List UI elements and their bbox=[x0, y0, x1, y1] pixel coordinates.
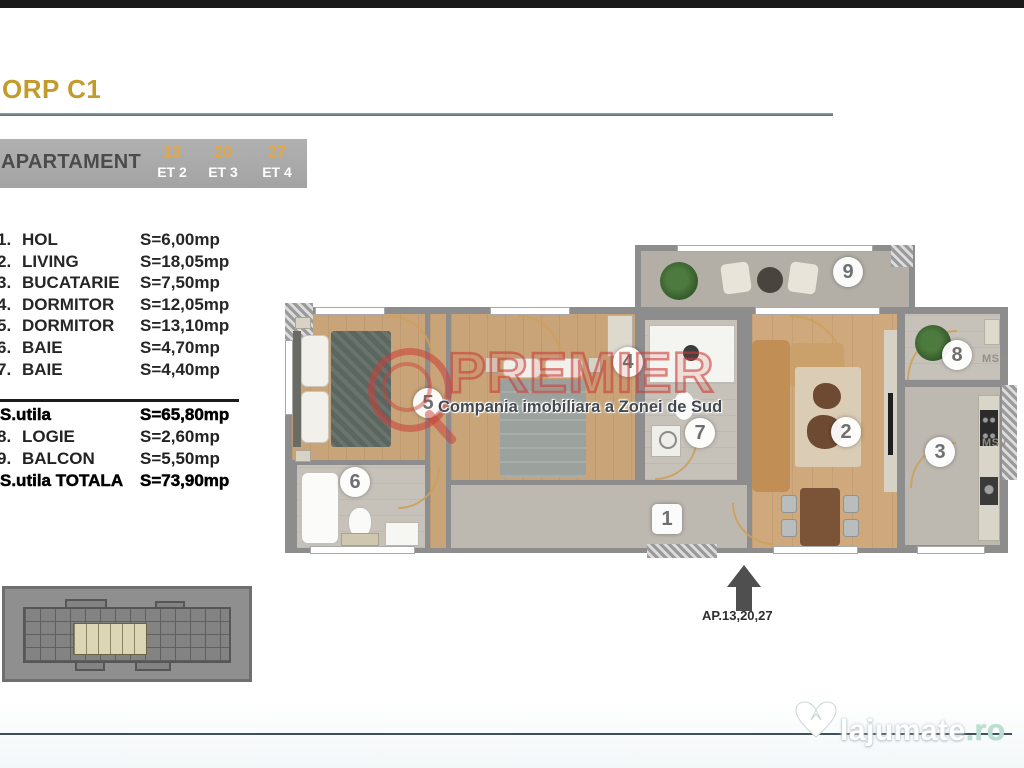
room-index: 2. bbox=[0, 252, 11, 272]
room-badge-hol: 1 bbox=[652, 504, 682, 534]
washing-machine bbox=[651, 425, 681, 457]
room-badge-baie-7: 7 bbox=[685, 418, 715, 448]
bed-blanket bbox=[331, 331, 391, 447]
totals-divider bbox=[0, 399, 239, 402]
room-row: 7. BAIE S=4,40mp bbox=[0, 360, 260, 382]
room-index: 7. bbox=[0, 360, 11, 380]
mini-building-wing bbox=[75, 661, 105, 671]
total-label: LOGIE bbox=[22, 427, 75, 447]
apartment-floorplan: 1 2 3 4 5 6 7 8 9 MSR MSV bbox=[285, 245, 1017, 561]
sofa bbox=[752, 340, 790, 492]
room-badge-dormitor-5: 5 bbox=[413, 388, 443, 418]
room-badge-living: 2 bbox=[831, 417, 861, 447]
dining-chair bbox=[843, 495, 859, 513]
coffee-table bbox=[813, 383, 841, 409]
room-index: 3. bbox=[0, 273, 11, 293]
total-row: 8. LOGIE S=2,60mp bbox=[0, 427, 260, 449]
room-badge-balcon: 9 bbox=[833, 257, 863, 287]
msv-label: MSV bbox=[982, 437, 1007, 449]
window bbox=[315, 307, 385, 315]
room-name: LIVING bbox=[22, 252, 79, 272]
total-area: S=73,90mp bbox=[140, 471, 229, 491]
room-badge-logie: 8 bbox=[942, 340, 972, 370]
hatch-area bbox=[891, 245, 913, 267]
entrance-arrow-label: AP.13,20,27 bbox=[702, 608, 812, 623]
apartment-table: APARTAMENT 13 ET 2 20 ET 3 27 ET 4 bbox=[0, 139, 307, 188]
balcony-chair bbox=[719, 260, 753, 296]
bed-headboard bbox=[293, 331, 301, 447]
toilet bbox=[673, 391, 695, 421]
bed-pillow bbox=[545, 358, 583, 378]
room-name: BUCATARIE bbox=[22, 273, 120, 293]
total-area: S=2,60mp bbox=[140, 427, 220, 447]
total-row: S.utila TOTALA S=73,90mp bbox=[0, 471, 260, 493]
total-row: S.utila S=65,80mp bbox=[0, 405, 260, 427]
room-badge-bucatarie: 3 bbox=[925, 437, 955, 467]
window bbox=[917, 546, 985, 554]
totals-list: S.utila S=65,80mp 8. LOGIE S=2,60mp 9. B… bbox=[0, 405, 260, 493]
room-row: 3. BUCATARIE S=7,50mp bbox=[0, 273, 260, 295]
window bbox=[310, 546, 415, 554]
room-area: S=4,40mp bbox=[140, 360, 220, 380]
total-label: BALCON bbox=[22, 449, 95, 469]
dining-table bbox=[800, 488, 840, 546]
room-row: 6. BAIE S=4,70mp bbox=[0, 338, 260, 360]
room-badge-dormitor-4: 4 bbox=[613, 347, 643, 377]
mini-building-wing bbox=[65, 599, 107, 609]
balcony-table bbox=[757, 267, 783, 293]
total-area: S=5,50mp bbox=[140, 449, 220, 469]
apartment-table-label: APARTAMENT bbox=[1, 151, 141, 174]
unit-floor: ET 2 bbox=[145, 164, 199, 180]
room-area: S=12,05mp bbox=[140, 295, 229, 315]
nightstand bbox=[295, 450, 311, 462]
room-index: 4. bbox=[0, 295, 11, 315]
entrance-arrow-icon bbox=[727, 565, 761, 587]
bed-pillow bbox=[301, 391, 329, 443]
unit-floor: ET 4 bbox=[250, 164, 304, 180]
dining-chair bbox=[781, 495, 797, 513]
mini-highlighted-apartment bbox=[73, 623, 147, 655]
mini-building-wing bbox=[155, 601, 185, 609]
tv bbox=[888, 393, 893, 455]
site-name-text: lajumate.ro bbox=[840, 714, 1006, 748]
room-index: 6. bbox=[0, 338, 11, 358]
nightstand bbox=[485, 357, 498, 373]
msr-label: MSR bbox=[982, 353, 1008, 365]
room-row: 2. LIVING S=18,05mp bbox=[0, 252, 260, 274]
mini-building-outline bbox=[23, 607, 231, 663]
window bbox=[773, 546, 858, 554]
window bbox=[285, 340, 293, 415]
room-area: S=4,70mp bbox=[140, 338, 220, 358]
room-list: 1. HOL S=6,00mp 2. LIVING S=18,05mp 3. B… bbox=[0, 230, 260, 381]
room-index: 1. bbox=[0, 230, 11, 250]
title-underline bbox=[0, 113, 833, 116]
total-label: S.utila bbox=[0, 405, 51, 425]
bed-blanket bbox=[500, 379, 586, 477]
mini-building-wing bbox=[135, 661, 171, 671]
top-black-bar bbox=[0, 0, 1024, 8]
shower-drain bbox=[683, 345, 699, 361]
room-area: S=6,00mp bbox=[140, 230, 220, 250]
page-title: ORP C1 bbox=[2, 74, 101, 105]
total-row: 9. BALCON S=5,50mp bbox=[0, 449, 260, 471]
dining-chair bbox=[843, 519, 859, 537]
room-row: 1. HOL S=6,00mp bbox=[0, 230, 260, 252]
room-name: HOL bbox=[22, 230, 58, 250]
room-name: BAIE bbox=[22, 360, 63, 380]
apartment-unit-col: 20 ET 3 bbox=[196, 139, 250, 180]
corridor-floor bbox=[430, 314, 446, 548]
room-name: DORMITOR bbox=[22, 316, 114, 336]
room-area: S=13,10mp bbox=[140, 316, 229, 336]
balcony-chair bbox=[786, 260, 820, 296]
apartment-unit-col: 27 ET 4 bbox=[250, 139, 304, 180]
building-level-miniplan bbox=[2, 586, 252, 682]
apartment-unit-col: 13 ET 2 bbox=[145, 139, 199, 180]
kitchen-sink bbox=[980, 477, 998, 505]
room-name: DORMITOR bbox=[22, 295, 114, 315]
site-name: lajumate bbox=[840, 714, 966, 747]
room-area: S=7,50mp bbox=[140, 273, 220, 293]
nightstand bbox=[588, 357, 601, 373]
room-name: BAIE bbox=[22, 338, 63, 358]
unit-floor: ET 3 bbox=[196, 164, 250, 180]
total-label: S.utila TOTALA bbox=[0, 471, 123, 491]
bathtub bbox=[300, 471, 340, 545]
nightstand bbox=[295, 317, 311, 329]
site-tld: .ro bbox=[966, 714, 1006, 747]
balcony-window bbox=[677, 245, 873, 252]
entrance-hatch bbox=[647, 544, 717, 558]
window bbox=[755, 307, 880, 315]
total-index: 8. bbox=[0, 427, 11, 447]
lajumate-watermark: lajumate.ro bbox=[788, 698, 1024, 758]
unit-number: 20 bbox=[196, 144, 250, 162]
room-row: 4. DORMITOR S=12,05mp bbox=[0, 295, 260, 317]
total-area: S=65,80mp bbox=[140, 405, 229, 425]
plant bbox=[660, 262, 698, 300]
bed-pillow bbox=[301, 335, 329, 387]
heart-logo-icon bbox=[794, 700, 838, 740]
hallway-floor bbox=[451, 485, 747, 548]
room-index: 5. bbox=[0, 316, 11, 336]
window bbox=[490, 307, 570, 315]
bed-pillow bbox=[503, 358, 541, 378]
unit-number: 27 bbox=[250, 144, 304, 162]
room-area: S=18,05mp bbox=[140, 252, 229, 272]
unit-number: 13 bbox=[145, 144, 199, 162]
storage-box bbox=[984, 319, 1000, 345]
vanity bbox=[341, 533, 379, 546]
floorplan-page: ORP C1 APARTAMENT 13 ET 2 20 ET 3 27 ET … bbox=[0, 0, 1024, 768]
total-index: 9. bbox=[0, 449, 11, 469]
room-badge-baie-6: 6 bbox=[340, 467, 370, 497]
sink bbox=[385, 522, 419, 546]
dining-chair bbox=[781, 519, 797, 537]
hatch-area bbox=[1002, 385, 1017, 480]
room-row: 5. DORMITOR S=13,10mp bbox=[0, 316, 260, 338]
